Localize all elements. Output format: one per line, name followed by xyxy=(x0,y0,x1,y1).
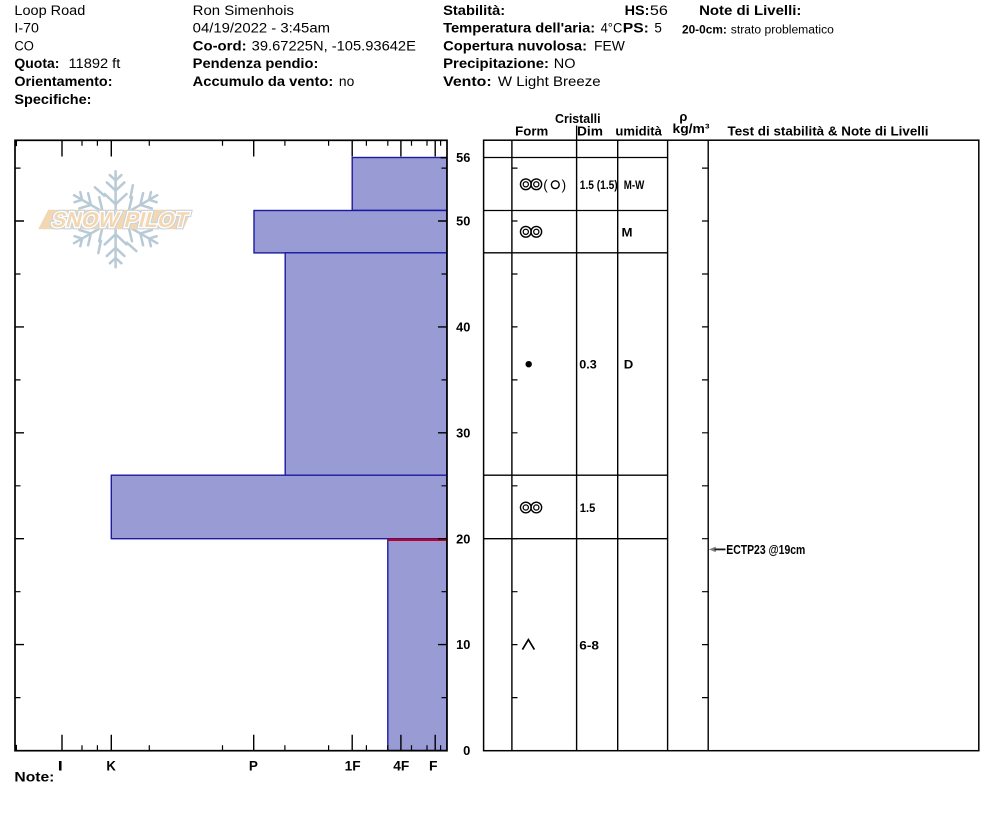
svg-text:10: 10 xyxy=(456,638,470,652)
svg-text:FEW: FEW xyxy=(594,38,625,53)
svg-text:Pendenza pendio:: Pendenza pendio: xyxy=(193,56,319,71)
svg-text:30: 30 xyxy=(456,426,470,440)
svg-text:39.67225N, -105.93642E: 39.67225N, -105.93642E xyxy=(252,38,416,53)
svg-text:Form: Form xyxy=(515,125,548,139)
svg-text:): ) xyxy=(562,177,567,192)
svg-text:5: 5 xyxy=(654,21,662,36)
svg-text:Vento:: Vento: xyxy=(443,74,492,89)
svg-text:56: 56 xyxy=(456,151,470,165)
svg-text:Loop Road: Loop Road xyxy=(14,3,85,18)
svg-text:Test di stabilità & Note di Li: Test di stabilità & Note di Livelli xyxy=(728,125,929,139)
svg-text:56: 56 xyxy=(650,3,668,18)
svg-text:Copertura nuvolosa:: Copertura nuvolosa: xyxy=(443,38,587,53)
svg-text:PS:: PS: xyxy=(623,21,649,36)
svg-text:HS:: HS: xyxy=(625,3,650,18)
svg-text:20: 20 xyxy=(456,532,470,546)
svg-text:Quota:: Quota: xyxy=(14,56,59,71)
svg-text:11892 ft: 11892 ft xyxy=(69,56,121,71)
svg-text:D: D xyxy=(624,358,634,372)
svg-text:40: 40 xyxy=(456,321,470,335)
svg-text:ECTP23 @19cm: ECTP23 @19cm xyxy=(726,542,805,557)
svg-text:K: K xyxy=(106,759,116,774)
svg-text:Orientamento:: Orientamento: xyxy=(14,74,112,89)
svg-text:no: no xyxy=(339,74,354,89)
svg-text:1.5: 1.5 xyxy=(580,501,596,515)
svg-text:Co-ord:: Co-ord: xyxy=(193,38,247,53)
svg-text:(: ( xyxy=(543,177,548,192)
svg-text:P: P xyxy=(249,759,258,774)
svg-text:Dim: Dim xyxy=(577,125,603,139)
svg-text:F: F xyxy=(429,759,438,774)
svg-text:4F: 4F xyxy=(393,759,409,774)
svg-text:umidità: umidità xyxy=(615,125,662,139)
svg-text:W Light Breeze: W Light Breeze xyxy=(498,74,601,89)
svg-text:kg/m³: kg/m³ xyxy=(673,122,710,136)
svg-text:Accumulo da vento:: Accumulo da vento: xyxy=(193,74,334,89)
svg-text:04/19/2022 - 3:45am: 04/19/2022 - 3:45am xyxy=(193,21,330,36)
svg-text:0: 0 xyxy=(463,744,470,758)
svg-text:strato problematico: strato problematico xyxy=(731,25,834,37)
svg-text:Temperatura dell'aria:: Temperatura dell'aria: xyxy=(443,21,595,36)
svg-text:Ron Simenhois: Ron Simenhois xyxy=(193,3,295,18)
svg-text:Specifiche:: Specifiche: xyxy=(14,92,91,107)
svg-text:M-W: M-W xyxy=(624,178,645,192)
svg-text:I: I xyxy=(58,759,63,774)
svg-text:Precipitazione:: Precipitazione: xyxy=(443,56,549,71)
svg-text:SNOW PILOT: SNOW PILOT xyxy=(49,207,192,232)
svg-text:I-70: I-70 xyxy=(14,21,39,36)
svg-text:NO: NO xyxy=(554,56,576,71)
svg-text:M: M xyxy=(622,225,633,239)
svg-text:Stabilità:: Stabilità: xyxy=(443,3,505,18)
svg-text:50: 50 xyxy=(456,215,470,229)
svg-text:4°C: 4°C xyxy=(601,21,623,36)
svg-text:Note:: Note: xyxy=(14,770,54,785)
svg-text:6-8: 6-8 xyxy=(579,638,599,652)
svg-text:1.5 (1.5): 1.5 (1.5) xyxy=(580,178,618,192)
svg-text:1F: 1F xyxy=(345,759,361,774)
svg-text:CO: CO xyxy=(14,38,34,53)
svg-text:0.3: 0.3 xyxy=(579,358,597,372)
svg-text:20-0cm:: 20-0cm: xyxy=(682,25,727,37)
svg-text:Note di Livelli:: Note di Livelli: xyxy=(699,3,801,18)
